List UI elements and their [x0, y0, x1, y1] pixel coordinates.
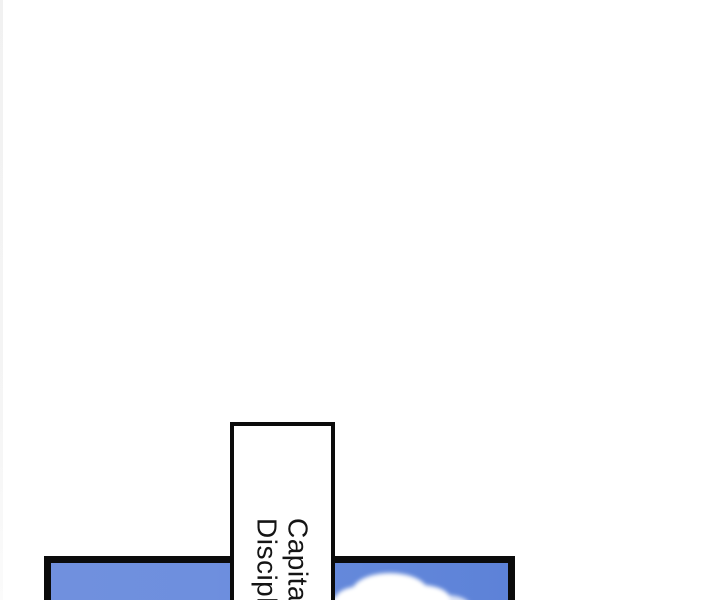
pillar-capital-discipline: Capital Discipline — [230, 422, 335, 600]
pillar-label: Capital Discipline — [252, 518, 314, 600]
page-left-edge-line — [0, 0, 3, 600]
slide-canvas: Capital Discipline — [0, 0, 720, 600]
